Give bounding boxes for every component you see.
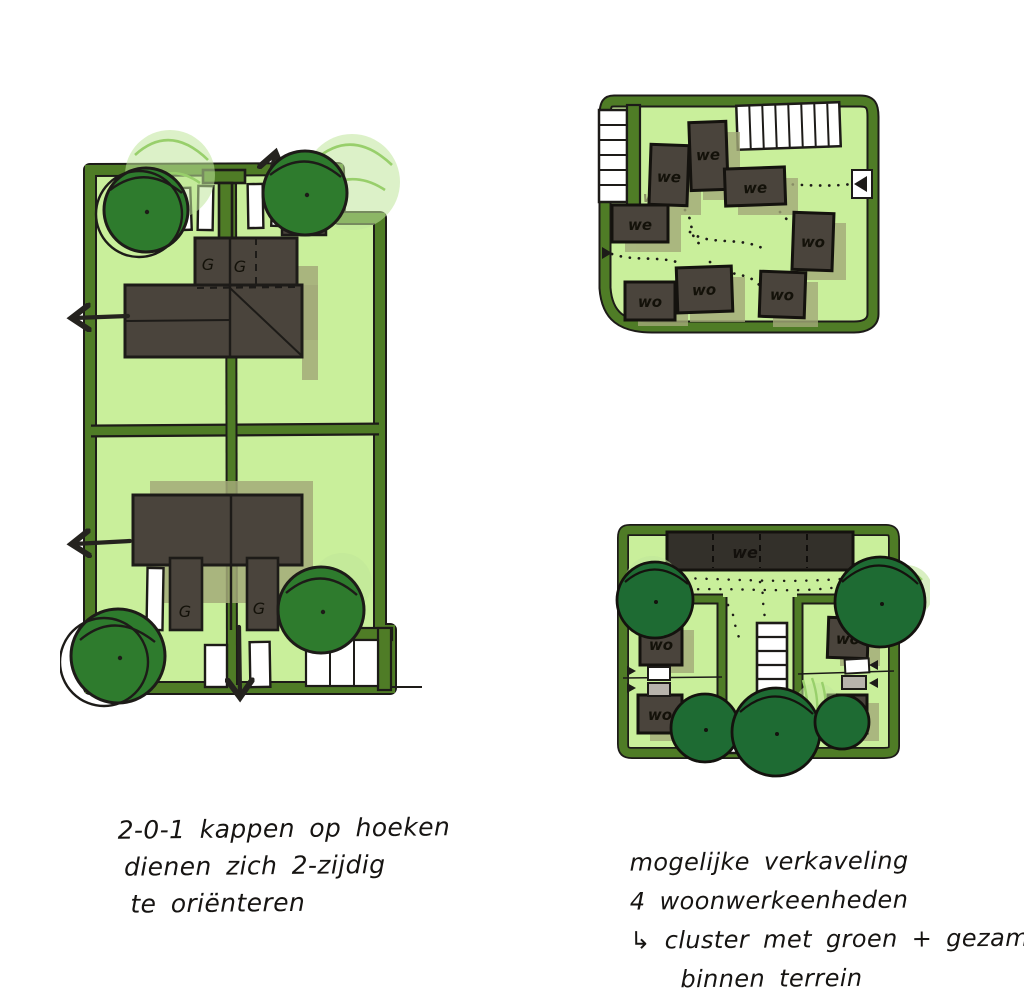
site-plan-cluster-free: we we wo we we we we wo wo xyxy=(590,92,890,337)
svg-text:wo: wo xyxy=(648,706,672,724)
arrow-down-icon xyxy=(239,627,240,695)
caption-left-line1: 2-0-1 kappen op hoeken xyxy=(117,808,450,848)
svg-text:we: we xyxy=(696,146,721,165)
caption-left: 2-0-1 kappen op hoeken dienen zich 2-zij… xyxy=(117,808,451,922)
garage-label: G xyxy=(234,257,246,276)
garage-label: G xyxy=(202,255,214,274)
building-we: we xyxy=(724,167,785,206)
caption-right: mogelijke verkaveling 4 woonwerkeenheden… xyxy=(629,840,1024,999)
caption-right-line4: binnen terrein xyxy=(680,957,1024,999)
garage-label: G xyxy=(179,602,191,621)
caption-left-line2: dienen zich 2-zijdig xyxy=(124,845,451,885)
building-wo: wo xyxy=(792,212,834,270)
svg-text:wo: wo xyxy=(638,293,662,311)
caption-left-line3: te oriënteren xyxy=(130,882,451,922)
building-we: we xyxy=(612,205,668,242)
building-we: we xyxy=(649,144,689,205)
building-wo: wo xyxy=(625,282,675,320)
svg-text:we: we xyxy=(743,179,768,198)
caption-right-line1: mogelijke verkaveling xyxy=(629,840,1024,882)
caption-right-line3: ↳ cluster met groen + gezamelijk xyxy=(630,918,1024,960)
building-bar-we: we xyxy=(667,532,853,570)
svg-text:we: we xyxy=(628,216,652,234)
parking-strip xyxy=(736,102,841,151)
site-plan-cluster-court: we wo wo wo xyxy=(610,520,930,782)
building-we: we xyxy=(689,121,728,190)
svg-text:we: we xyxy=(657,168,682,187)
svg-text:wo: wo xyxy=(801,233,826,252)
building-wo: wo xyxy=(759,271,806,318)
site-plan-two-lots: G G G G xyxy=(60,125,440,725)
svg-text:wo: wo xyxy=(770,286,795,305)
building-shadow xyxy=(302,285,318,380)
garage-label: G xyxy=(253,599,265,618)
building-wo: wo xyxy=(676,266,733,313)
svg-text:wo: wo xyxy=(692,281,717,300)
building-label: we xyxy=(732,543,758,562)
parking-strip xyxy=(599,105,640,205)
caption-right-line2: 4 woonwerkeenheden xyxy=(630,879,1024,921)
arrow-left-icon xyxy=(74,316,128,318)
arrow-left-icon xyxy=(74,541,130,544)
